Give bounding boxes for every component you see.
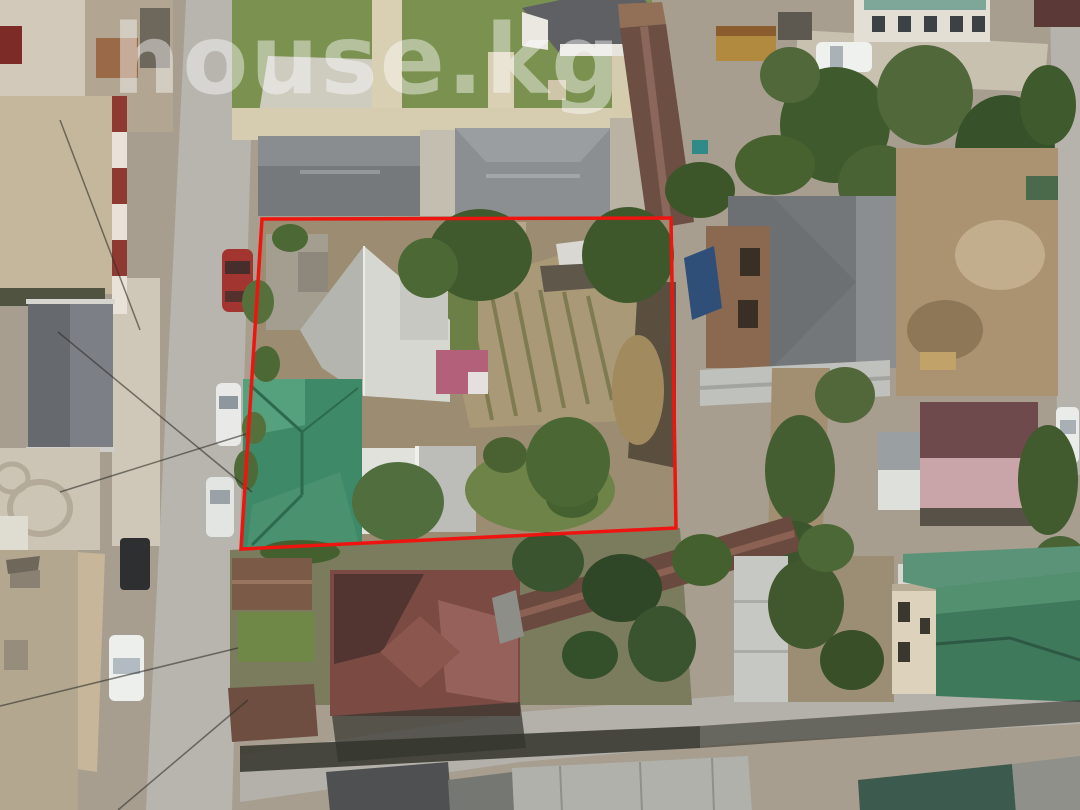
brown-roof-2 — [228, 684, 318, 742]
mp-white-roof — [878, 470, 920, 510]
aerial-photo-canvas — [0, 0, 1080, 810]
rubble-blocks — [298, 252, 328, 292]
white-car-1-glass — [219, 396, 238, 409]
gray-house-a-upper — [258, 136, 420, 166]
rm-tree-2 — [820, 630, 884, 690]
plot-bush-1 — [483, 437, 527, 473]
brick-window-2 — [738, 300, 758, 328]
mp-shadow — [920, 508, 1038, 526]
brown-gable-ridge — [232, 580, 312, 584]
bc-tree-5 — [562, 631, 618, 679]
gray-gable-left-slope — [28, 303, 70, 449]
plot-bush-l2 — [252, 346, 280, 382]
debris-dark — [140, 8, 170, 68]
wb-window-5 — [972, 16, 985, 32]
white-house-wall-south — [560, 44, 630, 56]
wood-pallet — [920, 352, 956, 370]
white-car-2 — [206, 477, 234, 537]
green-shed — [1026, 176, 1058, 200]
plot-bush-l3 — [242, 412, 266, 444]
garden-marker — [548, 80, 566, 100]
tr-tree-8 — [735, 135, 815, 195]
bh-window-1 — [898, 602, 910, 622]
tr-tree-6 — [760, 47, 820, 103]
plot-tree-2 — [398, 238, 458, 298]
dumpster-rust — [716, 26, 776, 36]
tr-tree-7 — [665, 162, 735, 218]
pole-stripe-1 — [112, 96, 127, 132]
lane-tree-2 — [815, 367, 875, 423]
topleft-building-red-roof — [0, 26, 22, 64]
rusty-container — [96, 38, 138, 78]
mp-gray-roof — [878, 432, 920, 470]
gravel-lot — [0, 550, 78, 810]
rm-tree-1 — [768, 559, 844, 649]
rm-tree-3 — [798, 524, 854, 572]
bh-window-2 — [898, 642, 910, 662]
left-dirt-lot — [0, 96, 118, 294]
right-tree-1 — [1018, 425, 1078, 535]
bottom-roof-right-gray — [1012, 756, 1080, 810]
junk-pile-2 — [4, 640, 28, 670]
wb-window-4 — [950, 16, 963, 32]
bc-tree-3 — [628, 606, 696, 682]
pole-stripe-3 — [112, 240, 127, 276]
plot-tree-4 — [526, 417, 610, 507]
wb-window-3 — [924, 16, 937, 32]
mid-pad — [420, 130, 455, 216]
wb-window-1 — [872, 16, 885, 32]
gray-gable-right-slope — [70, 303, 113, 449]
maroon-pink-roof-top — [920, 402, 1038, 458]
dark-shed — [778, 12, 812, 40]
white-car-top — [816, 42, 872, 72]
brick-window-1 — [740, 248, 760, 276]
plot-tree-5 — [352, 462, 444, 542]
plot-tree-3 — [582, 207, 674, 303]
bc-tree-4 — [672, 534, 732, 586]
white-van-glass — [113, 658, 140, 674]
gray-house-a-ridge — [300, 170, 380, 174]
white-car-2-glass — [210, 490, 230, 504]
pole-stripe-2 — [112, 168, 127, 204]
aerial-photo: house.kg — [0, 0, 1080, 810]
grass-yard — [238, 612, 314, 662]
tr-tree-5 — [1020, 65, 1076, 145]
brown-long-roof-top — [618, 2, 666, 28]
dark-truck — [120, 538, 150, 590]
pool-square — [692, 140, 708, 154]
dry-brush — [612, 335, 664, 445]
dirt-patch-1 — [955, 220, 1045, 290]
wb-window-2 — [898, 16, 911, 32]
lane-tree-1 — [765, 415, 835, 525]
red-car-windshield — [225, 261, 250, 274]
bc-tree-1 — [512, 532, 584, 592]
wvb-line-2 — [734, 650, 788, 653]
plot-bush-l4 — [272, 224, 308, 252]
pink-roof-corner — [468, 372, 488, 394]
dark-roof-corner — [1034, 0, 1080, 27]
white-car-top-glass — [830, 46, 843, 68]
dirt-patch-2 — [907, 300, 983, 360]
white-building-glass — [864, 0, 986, 10]
gray-gable-trim-top — [26, 299, 115, 304]
bh-window-3 — [920, 618, 930, 634]
gray-house-b-ridge — [486, 174, 580, 178]
